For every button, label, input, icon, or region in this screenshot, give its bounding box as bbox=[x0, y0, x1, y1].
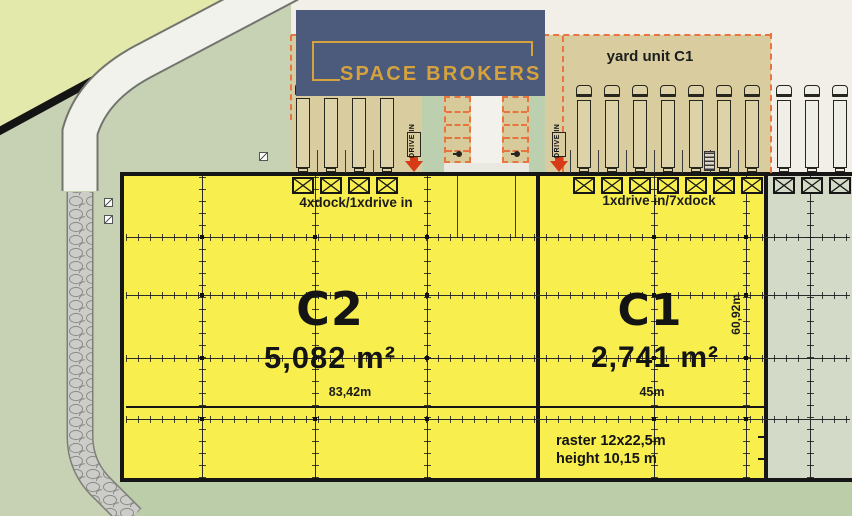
truck-icon bbox=[776, 85, 792, 97]
dock-door-icon bbox=[348, 177, 370, 194]
dock-door-icon bbox=[657, 177, 679, 194]
logo-text: SPACE BROKERS bbox=[340, 56, 543, 92]
dock-door-icon bbox=[573, 177, 595, 194]
grid-node bbox=[313, 417, 317, 421]
grid-node bbox=[200, 293, 204, 297]
truck-icon bbox=[604, 85, 620, 97]
truck-trailer bbox=[661, 100, 675, 168]
unit-c2-area: 5,082 m² bbox=[210, 340, 450, 376]
green-strip bbox=[422, 96, 444, 173]
truck-icon bbox=[716, 85, 732, 97]
truck-bumper bbox=[747, 168, 757, 172]
truck-icon bbox=[688, 85, 704, 97]
dock-door-icon bbox=[773, 177, 795, 194]
dock-door-icon bbox=[829, 177, 851, 194]
truck-trailer bbox=[805, 100, 819, 168]
grid-node bbox=[425, 417, 429, 421]
dock-door-icon bbox=[629, 177, 651, 194]
unit-c1-area: 2,741 m² bbox=[540, 341, 770, 375]
unit-c2-name: C2 bbox=[210, 282, 450, 336]
truck-bumper bbox=[607, 168, 617, 172]
interior-wall-line bbox=[126, 406, 766, 408]
truck-icon bbox=[576, 85, 592, 97]
truck-bumper bbox=[835, 168, 845, 172]
dock-guide-line bbox=[682, 150, 683, 173]
truck-bumper bbox=[779, 168, 789, 172]
truck-bumper bbox=[579, 168, 589, 172]
yard-dashed-border-right bbox=[770, 33, 772, 173]
truck-trailer bbox=[777, 100, 791, 168]
grid-line-vertical bbox=[199, 176, 206, 478]
truck-trailer bbox=[717, 100, 731, 168]
dock-door-icon bbox=[801, 177, 823, 194]
unit-c1-depth-dim: 60,92m bbox=[729, 294, 743, 335]
truck-bumper bbox=[354, 168, 364, 172]
raster-note: raster 12x22,5m bbox=[556, 433, 666, 449]
truck-trailer bbox=[352, 98, 366, 168]
grid-line-vertical bbox=[807, 176, 814, 478]
unit-c1-dock-info: 1xdrive in/7xdock bbox=[569, 193, 749, 208]
height-note: height 10,15 m bbox=[556, 451, 657, 467]
grid-node bbox=[652, 235, 656, 239]
site-plan-canvas: C2 5,082 m² 83,42m 4xdock/1xdrive in C1 … bbox=[0, 0, 852, 516]
truck-icon bbox=[744, 85, 760, 97]
grid-node bbox=[200, 417, 204, 421]
dock-guide-line bbox=[626, 150, 627, 173]
truck-trailer bbox=[324, 98, 338, 168]
grid-node bbox=[200, 235, 204, 239]
dock-door-icon bbox=[601, 177, 623, 194]
grid-node bbox=[313, 235, 317, 239]
car-icon bbox=[453, 150, 463, 159]
dock-door-icon bbox=[685, 177, 707, 194]
witness-line bbox=[515, 176, 516, 237]
truck-bumper bbox=[663, 168, 673, 172]
truck-trailer bbox=[380, 98, 394, 168]
truck-trailer bbox=[633, 100, 647, 168]
grid-node bbox=[744, 417, 748, 421]
door-icon bbox=[104, 215, 113, 224]
parking-lane bbox=[471, 96, 502, 173]
unit-c1-name: C1 bbox=[540, 285, 760, 336]
truck-icon bbox=[660, 85, 676, 97]
unit-c2-width-dim: 83,42m bbox=[280, 385, 420, 399]
dock-door-icon bbox=[741, 177, 763, 194]
grid-node bbox=[652, 417, 656, 421]
truck-trailer bbox=[296, 98, 310, 168]
truck-bumper bbox=[719, 168, 729, 172]
yard-dashed-border-left bbox=[290, 35, 292, 120]
landscape-left bbox=[0, 173, 120, 516]
door-icon bbox=[104, 198, 113, 207]
drive-in-label: DRIVE IN bbox=[554, 104, 561, 158]
door-icon bbox=[259, 152, 268, 161]
space-brokers-logo: SPACE BROKERS bbox=[296, 10, 545, 96]
truck-bumper bbox=[298, 168, 308, 172]
dock-door-icon bbox=[376, 177, 398, 194]
dock-door-icon bbox=[713, 177, 735, 194]
truck-trailer bbox=[577, 100, 591, 168]
car-icon bbox=[511, 150, 521, 159]
grid-node bbox=[744, 235, 748, 239]
dock-guide-line bbox=[738, 150, 739, 173]
grid-node bbox=[200, 356, 204, 360]
truck-bumper bbox=[635, 168, 645, 172]
dock-guide-line bbox=[654, 150, 655, 173]
grid-node bbox=[425, 235, 429, 239]
truck-icon bbox=[632, 85, 648, 97]
grid-line-horizontal bbox=[126, 234, 850, 241]
dock-guide-line bbox=[317, 150, 318, 173]
drive-in-arrow-icon bbox=[405, 161, 423, 172]
truck-icon bbox=[804, 85, 820, 97]
dock-door-icon bbox=[320, 177, 342, 194]
truck-icon bbox=[832, 85, 848, 97]
stairs-icon bbox=[704, 151, 715, 171]
drive-in-arrow-icon bbox=[550, 161, 568, 172]
dock-guide-line bbox=[373, 150, 374, 173]
unit-c1-width-dim: 45m bbox=[582, 385, 722, 399]
green-strip bbox=[529, 96, 545, 173]
truck-bumper bbox=[326, 168, 336, 172]
unit-c2-dock-info: 4xdock/1xdrive in bbox=[266, 195, 446, 210]
landscape-bottom bbox=[120, 482, 852, 516]
grid-line-horizontal bbox=[126, 416, 850, 423]
dock-guide-line bbox=[598, 150, 599, 173]
yard-unit-c1-label: yard unit C1 bbox=[560, 48, 740, 65]
truck-trailer bbox=[605, 100, 619, 168]
witness-line bbox=[457, 176, 458, 237]
truck-trailer bbox=[689, 100, 703, 168]
truck-trailer bbox=[745, 100, 759, 168]
dock-door-icon bbox=[292, 177, 314, 194]
truck-bumper bbox=[691, 168, 701, 172]
dock-guide-line bbox=[570, 150, 571, 173]
truck-bumper bbox=[382, 168, 392, 172]
truck-bumper bbox=[807, 168, 817, 172]
truck-trailer bbox=[833, 100, 847, 168]
drive-in-label: DRIVE IN bbox=[409, 104, 416, 158]
wall-door-bracket-icon bbox=[758, 436, 767, 460]
dock-guide-line bbox=[345, 150, 346, 173]
